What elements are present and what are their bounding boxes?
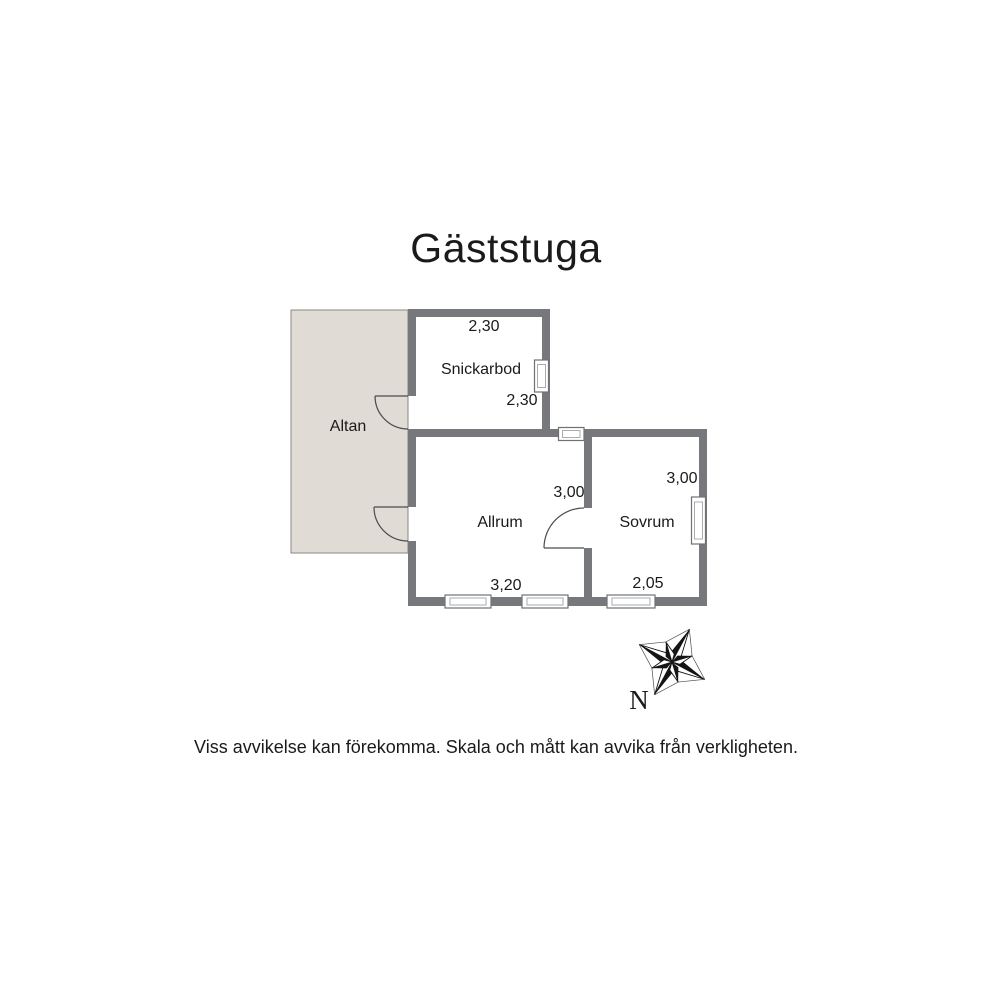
window-allrum-top: [559, 428, 585, 441]
door-allrum-sovrum: [544, 508, 584, 548]
walls: [408, 309, 707, 606]
snickarbod-depth-dimension: 2,30: [506, 391, 537, 410]
floorplan-page: Gäststuga: [0, 0, 992, 992]
snickarbod-label: Snickarbod: [441, 360, 521, 379]
left-wall-upper: [408, 309, 416, 396]
window-allrum-bottom-right: [522, 595, 568, 608]
window-snickarbod-right: [535, 360, 549, 392]
left-wall-lower: [408, 541, 416, 606]
altan-label: Altan: [330, 417, 366, 436]
compass-short-arms: [646, 636, 698, 688]
snickarbod-width-dimension: 2,30: [468, 317, 499, 336]
sovrum-label: Sovrum: [619, 513, 674, 532]
allrum-label: Allrum: [477, 513, 522, 532]
allrum-depth-dimension: 3,00: [553, 483, 584, 502]
floorplan-drawing: [0, 0, 992, 992]
sovrum-depth-dimension: 3,00: [666, 469, 697, 488]
allrum-sovrum-divider-lower: [584, 548, 592, 606]
window-allrum-bottom-left: [445, 595, 491, 608]
allrum-width-dimension: 3,20: [490, 576, 521, 595]
left-wall-middle: [408, 430, 416, 507]
middle-horizontal-wall: [408, 429, 707, 437]
disclaimer-text: Viss avvikelse kan förekomma. Skala och …: [0, 737, 992, 758]
sovrum-width-dimension: 2,05: [632, 574, 663, 593]
top-wall-snickarbod: [408, 309, 550, 317]
window-sovrum-right: [692, 497, 706, 544]
window-sovrum-bottom: [607, 595, 655, 608]
compass-north-label: N: [629, 686, 649, 714]
allrum-sovrum-divider-upper: [584, 429, 592, 508]
